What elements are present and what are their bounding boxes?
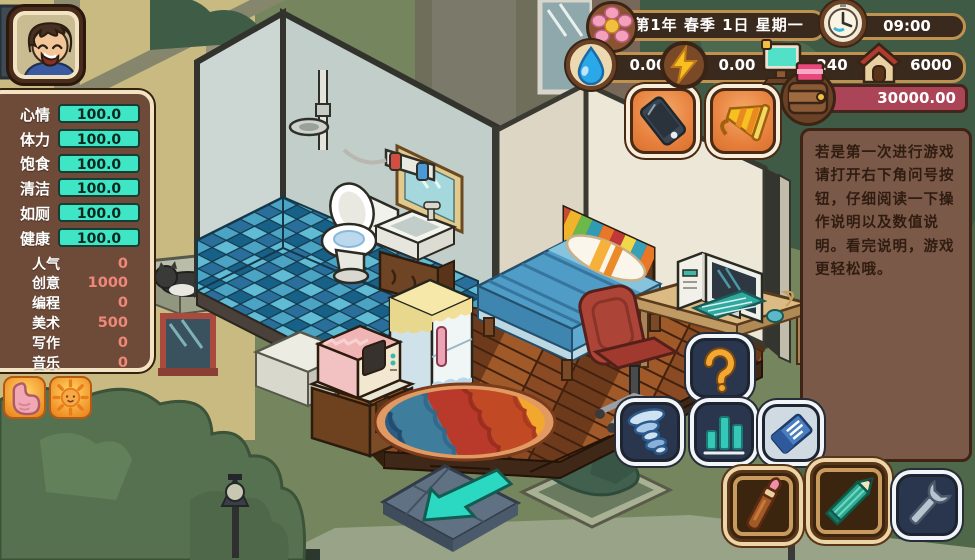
stat-value: 100.0	[58, 129, 140, 148]
notice-panel: 若是第一次进行游戏请打开右下角问号按钮，仔细阅读一下操作说明以及数值说明。看完说…	[800, 128, 972, 462]
megaphone-icon	[713, 91, 773, 151]
paintbrush-icon	[730, 473, 796, 539]
skills-list: 人气 0 创意 1000 编程 0 美术 500 写作 0 音乐 0	[0, 254, 150, 373]
sun-icon	[51, 378, 90, 417]
stat-row-mood: 心情 100.0	[0, 102, 150, 127]
skill-label: 编程	[32, 293, 60, 313]
avatar	[13, 11, 79, 79]
stat-value: 100.0	[58, 228, 140, 247]
skill-label: 创意	[32, 273, 60, 293]
skill-row-popularity: 人气 0	[0, 254, 150, 274]
stat-row-satiety: 饱食 100.0	[0, 152, 150, 177]
skill-row-writing: 写作 0	[0, 333, 150, 353]
stat-value: 100.0	[58, 203, 140, 222]
tornado-icon	[623, 405, 677, 459]
tornado-button[interactable]	[620, 402, 680, 462]
skill-row-music: 音乐 0	[0, 353, 150, 373]
skill-value: 0	[118, 256, 128, 272]
stat-label: 心情	[20, 104, 50, 125]
help-button[interactable]	[690, 338, 750, 398]
ticket-icon	[765, 407, 817, 459]
house-icon	[856, 40, 902, 86]
pencil-button[interactable]	[810, 462, 888, 540]
stat-value: 100.0	[58, 154, 140, 173]
skill-label: 人气	[32, 254, 60, 274]
money-bar: 30000.00	[818, 84, 968, 113]
house-badge	[856, 40, 902, 86]
ticket-button[interactable]	[762, 404, 820, 462]
skill-label: 美术	[32, 313, 60, 333]
stat-row-clean: 清洁 100.0	[0, 176, 150, 201]
phone-button[interactable]	[630, 88, 696, 154]
bar-chart-icon	[697, 405, 751, 459]
clock-icon	[824, 4, 862, 42]
sun-button[interactable]	[49, 376, 92, 419]
stat-row-health: 健康 100.0	[0, 226, 150, 251]
time-text: 09:00	[883, 17, 931, 35]
stat-value: 100.0	[58, 104, 140, 123]
notice-text: 若是第一次进行游戏请打开右下角问号按钮，仔细阅读一下操作说明以及数值说明。看完说…	[803, 131, 969, 294]
skill-value: 500	[98, 315, 128, 331]
stomach-icon	[5, 378, 44, 417]
wrench-icon	[899, 477, 955, 533]
skill-row-creativity: 创意 1000	[0, 274, 150, 294]
question-icon	[693, 341, 747, 395]
water-badge	[566, 40, 616, 90]
stat-row-energy: 体力 100.0	[0, 127, 150, 152]
stomach-button[interactable]	[3, 376, 46, 419]
boy-avatar-icon	[17, 15, 79, 79]
stat-row-toilet: 如厕 100.0	[0, 201, 150, 226]
wallet-badge[interactable]	[780, 70, 836, 126]
megaphone-button[interactable]	[710, 88, 776, 154]
skill-value: 0	[118, 335, 128, 351]
skill-value: 0	[118, 295, 128, 311]
skill-row-art: 美术 500	[0, 313, 150, 333]
stat-value: 100.0	[58, 178, 140, 197]
house-value: 6000	[902, 56, 960, 74]
stats-panel: 心情 100.0 体力 100.0 饱食 100.0 清洁 100.0 如厕 1…	[0, 90, 154, 372]
money-value: 30000.00	[877, 89, 956, 107]
water-drop-icon	[570, 44, 612, 86]
stat-label: 如厕	[20, 203, 50, 224]
stat-label: 清洁	[20, 178, 50, 199]
skill-value: 1000	[88, 275, 128, 291]
skill-row-coding: 编程 0	[0, 293, 150, 313]
stat-label: 饱食	[20, 153, 50, 174]
game-screen: 心情 100.0 体力 100.0 饱食 100.0 清洁 100.0 如厕 1…	[0, 0, 975, 560]
paintbrush-button[interactable]	[727, 470, 799, 542]
date-text: 第1年 春季 1日 星期一	[634, 16, 804, 34]
power-badge	[660, 41, 708, 89]
red-window	[158, 316, 218, 376]
mouse	[767, 310, 783, 322]
skill-label: 写作	[32, 333, 60, 353]
avatar-frame[interactable]	[6, 4, 86, 86]
skill-label: 音乐	[32, 353, 60, 373]
wrench-button[interactable]	[896, 474, 958, 536]
lightning-icon	[664, 45, 704, 85]
date-bar: 第1年 春季 1日 星期一	[612, 10, 826, 41]
skill-value: 0	[118, 355, 128, 371]
wallet-icon	[783, 73, 833, 123]
stats-chart-button[interactable]	[694, 402, 754, 462]
stat-label: 健康	[20, 228, 50, 249]
pencil-icon	[813, 465, 885, 537]
phone-icon	[633, 91, 693, 151]
stat-label: 体力	[20, 129, 50, 150]
